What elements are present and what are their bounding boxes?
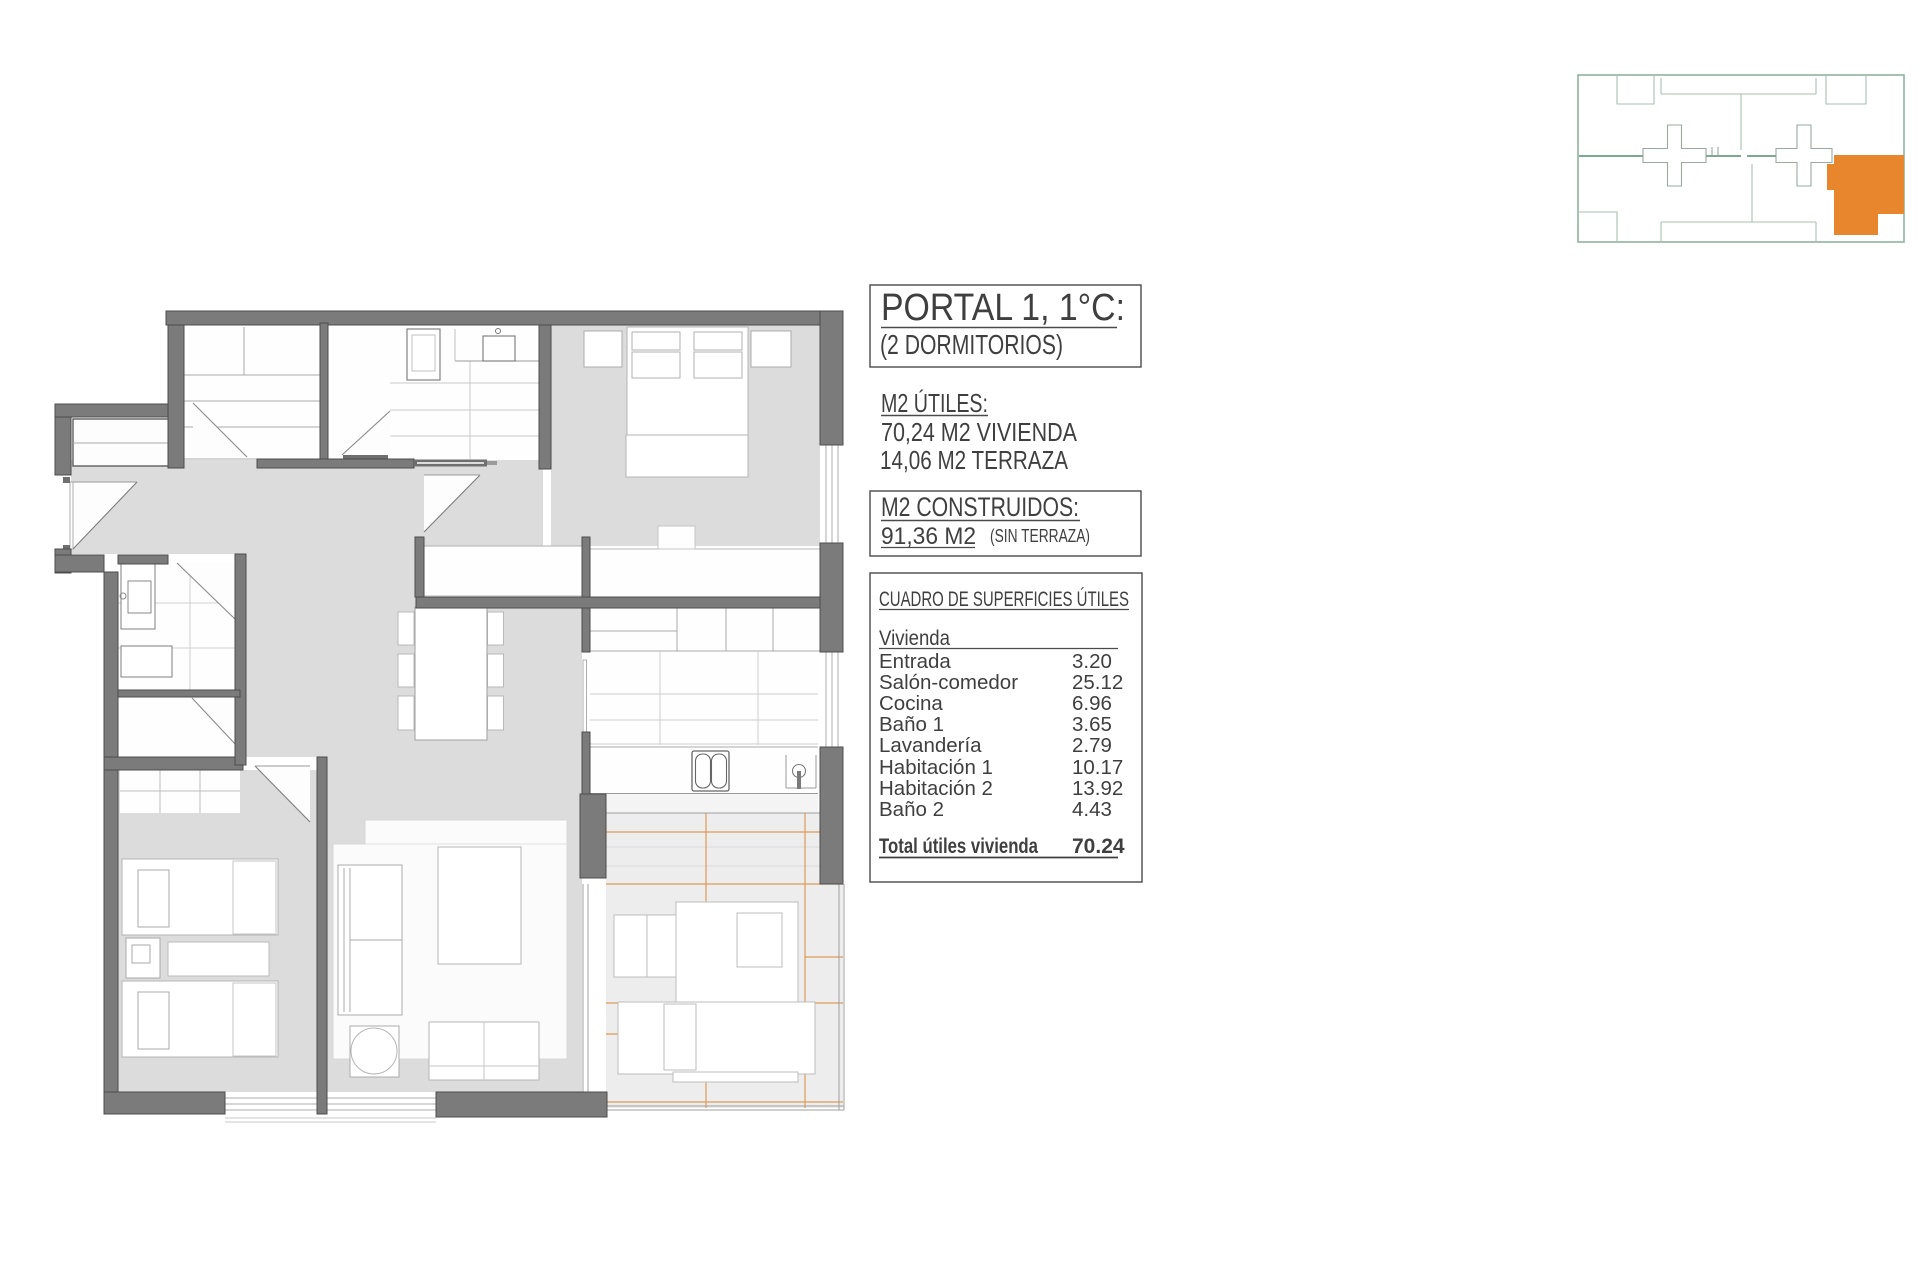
svg-text:Lavandería: Lavandería bbox=[879, 734, 982, 757]
svg-text:Total útiles vivienda: Total útiles vivienda bbox=[879, 835, 1038, 858]
svg-text:M2 CONSTRUIDOS:: M2 CONSTRUIDOS: bbox=[881, 492, 1079, 522]
svg-text:25.12: 25.12 bbox=[1072, 671, 1123, 694]
svg-text:CUADRO DE SUPERFICIES ÚTILES: CUADRO DE SUPERFICIES ÚTILES bbox=[879, 588, 1129, 611]
svg-text:Entrada: Entrada bbox=[879, 650, 951, 673]
svg-text:Baño 2: Baño 2 bbox=[879, 798, 944, 821]
svg-text:10.17: 10.17 bbox=[1072, 756, 1123, 779]
svg-text:3.65: 3.65 bbox=[1072, 713, 1112, 736]
svg-text:2.79: 2.79 bbox=[1072, 734, 1112, 757]
svg-text:(2 DORMITORIOS): (2 DORMITORIOS) bbox=[880, 329, 1063, 360]
svg-text:Habitación 1: Habitación 1 bbox=[879, 756, 993, 779]
svg-text:Cocina: Cocina bbox=[879, 692, 943, 715]
svg-text:Salón-comedor: Salón-comedor bbox=[879, 671, 1018, 694]
svg-text:91,36 M2: 91,36 M2 bbox=[881, 523, 976, 550]
svg-text:70.24: 70.24 bbox=[1072, 835, 1125, 858]
svg-text:14,06 M2 TERRAZA: 14,06 M2 TERRAZA bbox=[880, 445, 1069, 475]
svg-text:Habitación 2: Habitación 2 bbox=[879, 777, 993, 800]
svg-text:(SIN TERRAZA): (SIN TERRAZA) bbox=[990, 526, 1090, 546]
svg-text:4.43: 4.43 bbox=[1072, 798, 1112, 821]
svg-text:M2 ÚTILES:: M2 ÚTILES: bbox=[881, 388, 988, 418]
svg-text:Vivienda: Vivienda bbox=[879, 627, 950, 650]
svg-text:6.96: 6.96 bbox=[1072, 692, 1112, 715]
svg-text:13.92: 13.92 bbox=[1072, 777, 1123, 800]
svg-text:PORTAL 1, 1°C:: PORTAL 1, 1°C: bbox=[881, 287, 1125, 329]
svg-text:3.20: 3.20 bbox=[1072, 650, 1112, 673]
svg-text:Baño 1: Baño 1 bbox=[879, 713, 944, 736]
svg-text:70,24 M2 VIVIENDA: 70,24 M2 VIVIENDA bbox=[881, 417, 1078, 447]
